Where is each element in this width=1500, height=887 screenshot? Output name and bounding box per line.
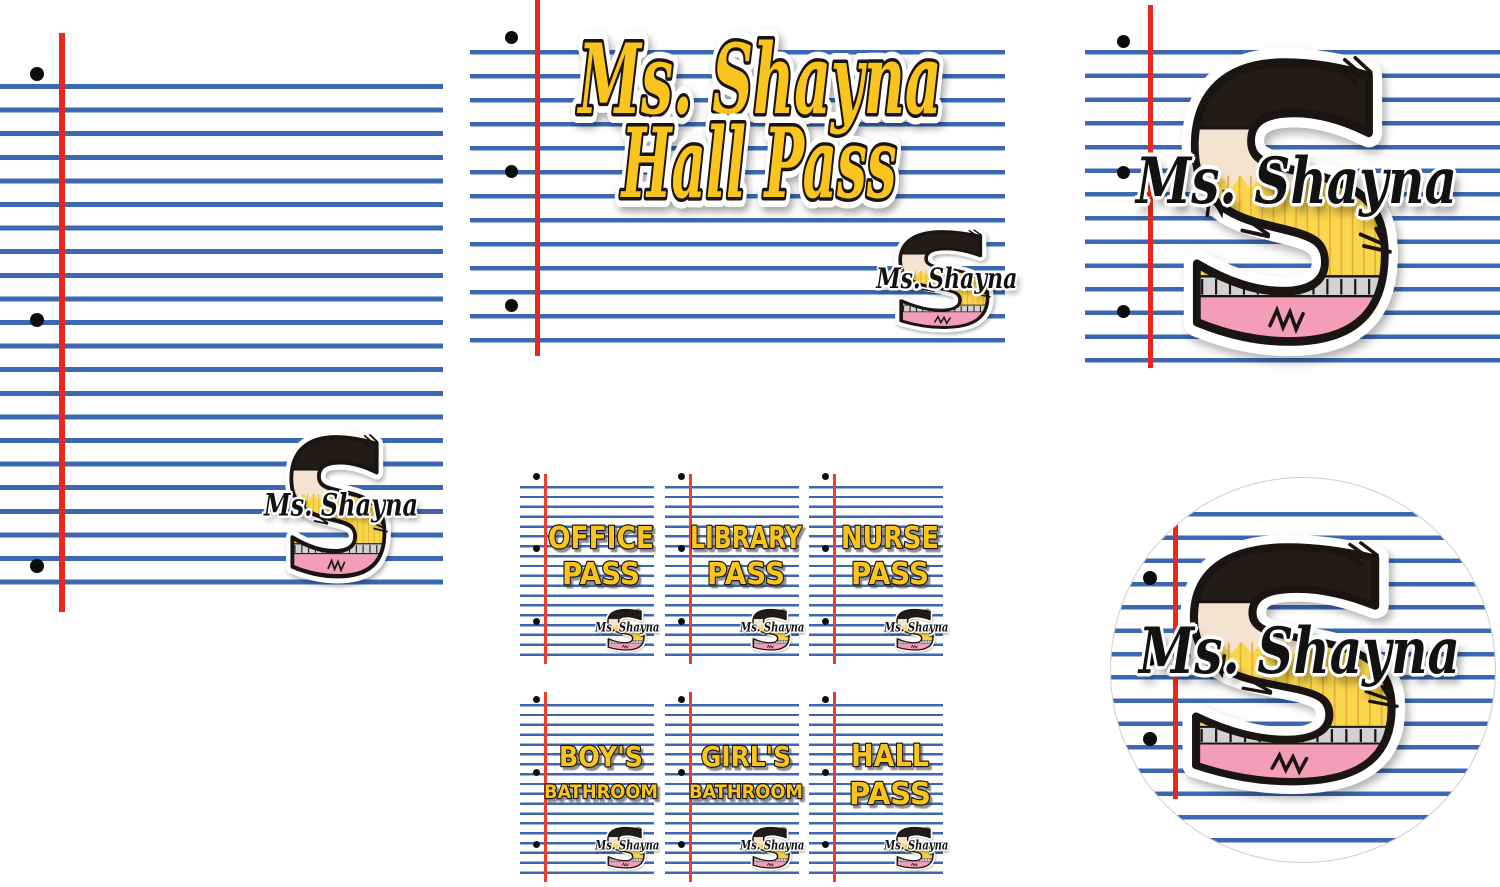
- card-label-line1: OFFICE: [548, 521, 654, 556]
- pencil-s-logo: Ms. Shayna: [896, 608, 934, 650]
- teacher-name-script: Ms. Shayna: [740, 840, 804, 854]
- teacher-name-script: Ms. Shayna: [884, 622, 948, 636]
- card-label-line1: BOY'S: [559, 740, 643, 773]
- teacher-name-script: Ms. Shayna: [884, 840, 948, 854]
- teacher-name-script: Ms. Shayna: [595, 622, 659, 636]
- teacher-name-script: Ms. Shayna: [876, 262, 1017, 295]
- card-label-line2: PASS: [849, 777, 931, 812]
- punch-hole: [505, 299, 518, 312]
- punch-hole: [30, 67, 44, 81]
- cover-title-line2: Hall Pass: [620, 107, 897, 220]
- card-label-line1: HALL: [851, 739, 929, 774]
- card-label-line1: NURSE: [841, 521, 939, 556]
- pencil-s-logo: Ms. Shayna: [752, 826, 790, 868]
- teacher-name-script: Ms. Shayna: [1136, 143, 1457, 219]
- pass-card-girls-bathroom: GIRL'S BATHROOM Ms. Shayna: [662, 686, 802, 887]
- punch-hole: [1143, 732, 1157, 746]
- teacher-name-script: Ms. Shayna: [740, 622, 804, 636]
- pencil-s-logo: Ms. Shayna: [607, 826, 645, 868]
- card-label-line1: GIRL'S: [701, 740, 791, 773]
- circle-monogram-badge: Ms. Shayna: [1110, 477, 1496, 863]
- card-label-line1: LIBRARY: [690, 521, 803, 556]
- punch-hole: [1117, 166, 1130, 179]
- pass-card-library: LIBRARY PASS Ms. Shayna: [662, 468, 802, 669]
- printables-collage: S S S: [0, 0, 1500, 887]
- card-label-line2: PASS: [562, 557, 640, 592]
- pencil-s-logo: Ms. Shayna: [1189, 538, 1397, 783]
- teacher-name-script: Ms. Shayna: [264, 486, 418, 523]
- card-label-line2: BATHROOM: [544, 781, 658, 803]
- punch-hole: [30, 559, 44, 573]
- card-label-line2: PASS: [851, 557, 929, 592]
- pass-card-office: OFFICE PASS Ms. Shayna: [517, 468, 657, 669]
- pencil-s-logo: Ms. Shayna: [896, 826, 934, 868]
- card-label-line2: BATHROOM: [689, 781, 803, 803]
- pass-card-nurse: NURSE PASS Ms. Shayna: [806, 468, 946, 669]
- pencil-s-logo: Ms. Shayna: [752, 608, 790, 650]
- margin-line: [59, 33, 65, 612]
- punch-hole: [1117, 305, 1130, 318]
- teacher-name-script: Ms. Shayna: [1139, 613, 1460, 689]
- teacher-name-script: Ms. Shayna: [595, 840, 659, 854]
- pencil-s-logo: Ms. Shayna: [898, 228, 990, 328]
- pencil-s-logo: Ms. Shayna: [289, 432, 387, 577]
- cover-title: Ms. Shayna Ms. Shayna Hall Pass Hall Pas…: [510, 8, 940, 238]
- pass-card-boys-bathroom: BOY'S BATHROOM Ms. Shayna: [517, 686, 657, 887]
- pass-card-hall: HALL PASS Ms. Shayna: [806, 686, 946, 887]
- punch-hole: [30, 313, 44, 327]
- punch-hole: [1143, 571, 1157, 585]
- pencil-s-logo: Ms. Shayna: [1190, 52, 1390, 343]
- card-label-line2: PASS: [707, 557, 785, 592]
- pencil-s-logo: Ms. Shayna: [607, 608, 645, 650]
- punch-hole: [1117, 35, 1130, 48]
